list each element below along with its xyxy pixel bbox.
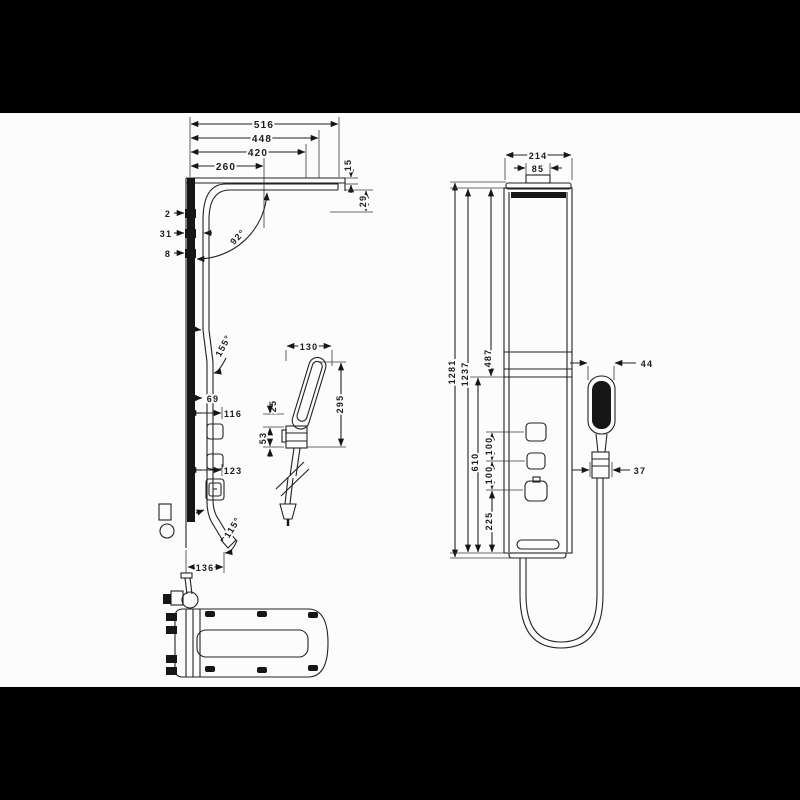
dim-label-136: 136 xyxy=(196,563,215,573)
dim-label-2: 2 xyxy=(165,209,171,219)
top-letterbox-bar xyxy=(0,0,800,113)
bottom-letterbox-bar xyxy=(0,687,800,800)
spray-face xyxy=(592,381,611,429)
dim-label-448: 448 xyxy=(252,134,272,145)
dim-label-44: 44 xyxy=(641,359,653,369)
overhead-spray-band xyxy=(511,192,566,198)
dim-label-85: 85 xyxy=(532,164,544,174)
dim-label-1281: 1281 xyxy=(447,360,457,385)
dim-label-487: 487 xyxy=(483,349,493,368)
dim-label-100b: 100 xyxy=(484,466,494,485)
wall-bracket-mark xyxy=(185,249,196,258)
screenshot: 516 448 420 260 xyxy=(0,0,800,800)
dim-label-130: 130 xyxy=(300,342,319,352)
dim-label-116: 116 xyxy=(224,409,242,419)
dim-label-37: 37 xyxy=(634,466,646,476)
dim-label-295: 295 xyxy=(335,395,345,414)
dim-label-69: 69 xyxy=(207,394,219,404)
dim-label-8: 8 xyxy=(165,249,171,259)
dim-label-610: 610 xyxy=(470,453,480,472)
dim-label-214: 214 xyxy=(529,151,548,161)
dim-label-420: 420 xyxy=(248,148,268,159)
dim-label-100a: 100 xyxy=(484,437,494,456)
dim-label-15: 15 xyxy=(343,159,353,171)
dim-label-1237: 1237 xyxy=(460,362,470,387)
dim-label-53: 53 xyxy=(258,432,268,444)
dim-label-260: 260 xyxy=(216,162,236,173)
technical-drawing: 516 448 420 260 xyxy=(0,0,800,800)
dim-label-31: 31 xyxy=(160,229,172,239)
dim-label-29: 29 xyxy=(358,195,368,207)
dim-label-225: 225 xyxy=(484,512,494,531)
dim-label-123: 123 xyxy=(224,466,243,476)
wall-bracket-mark xyxy=(185,209,196,218)
dim-label-516: 516 xyxy=(254,120,274,131)
wall-bracket-mark xyxy=(185,229,196,238)
drawing-canvas xyxy=(0,113,800,687)
